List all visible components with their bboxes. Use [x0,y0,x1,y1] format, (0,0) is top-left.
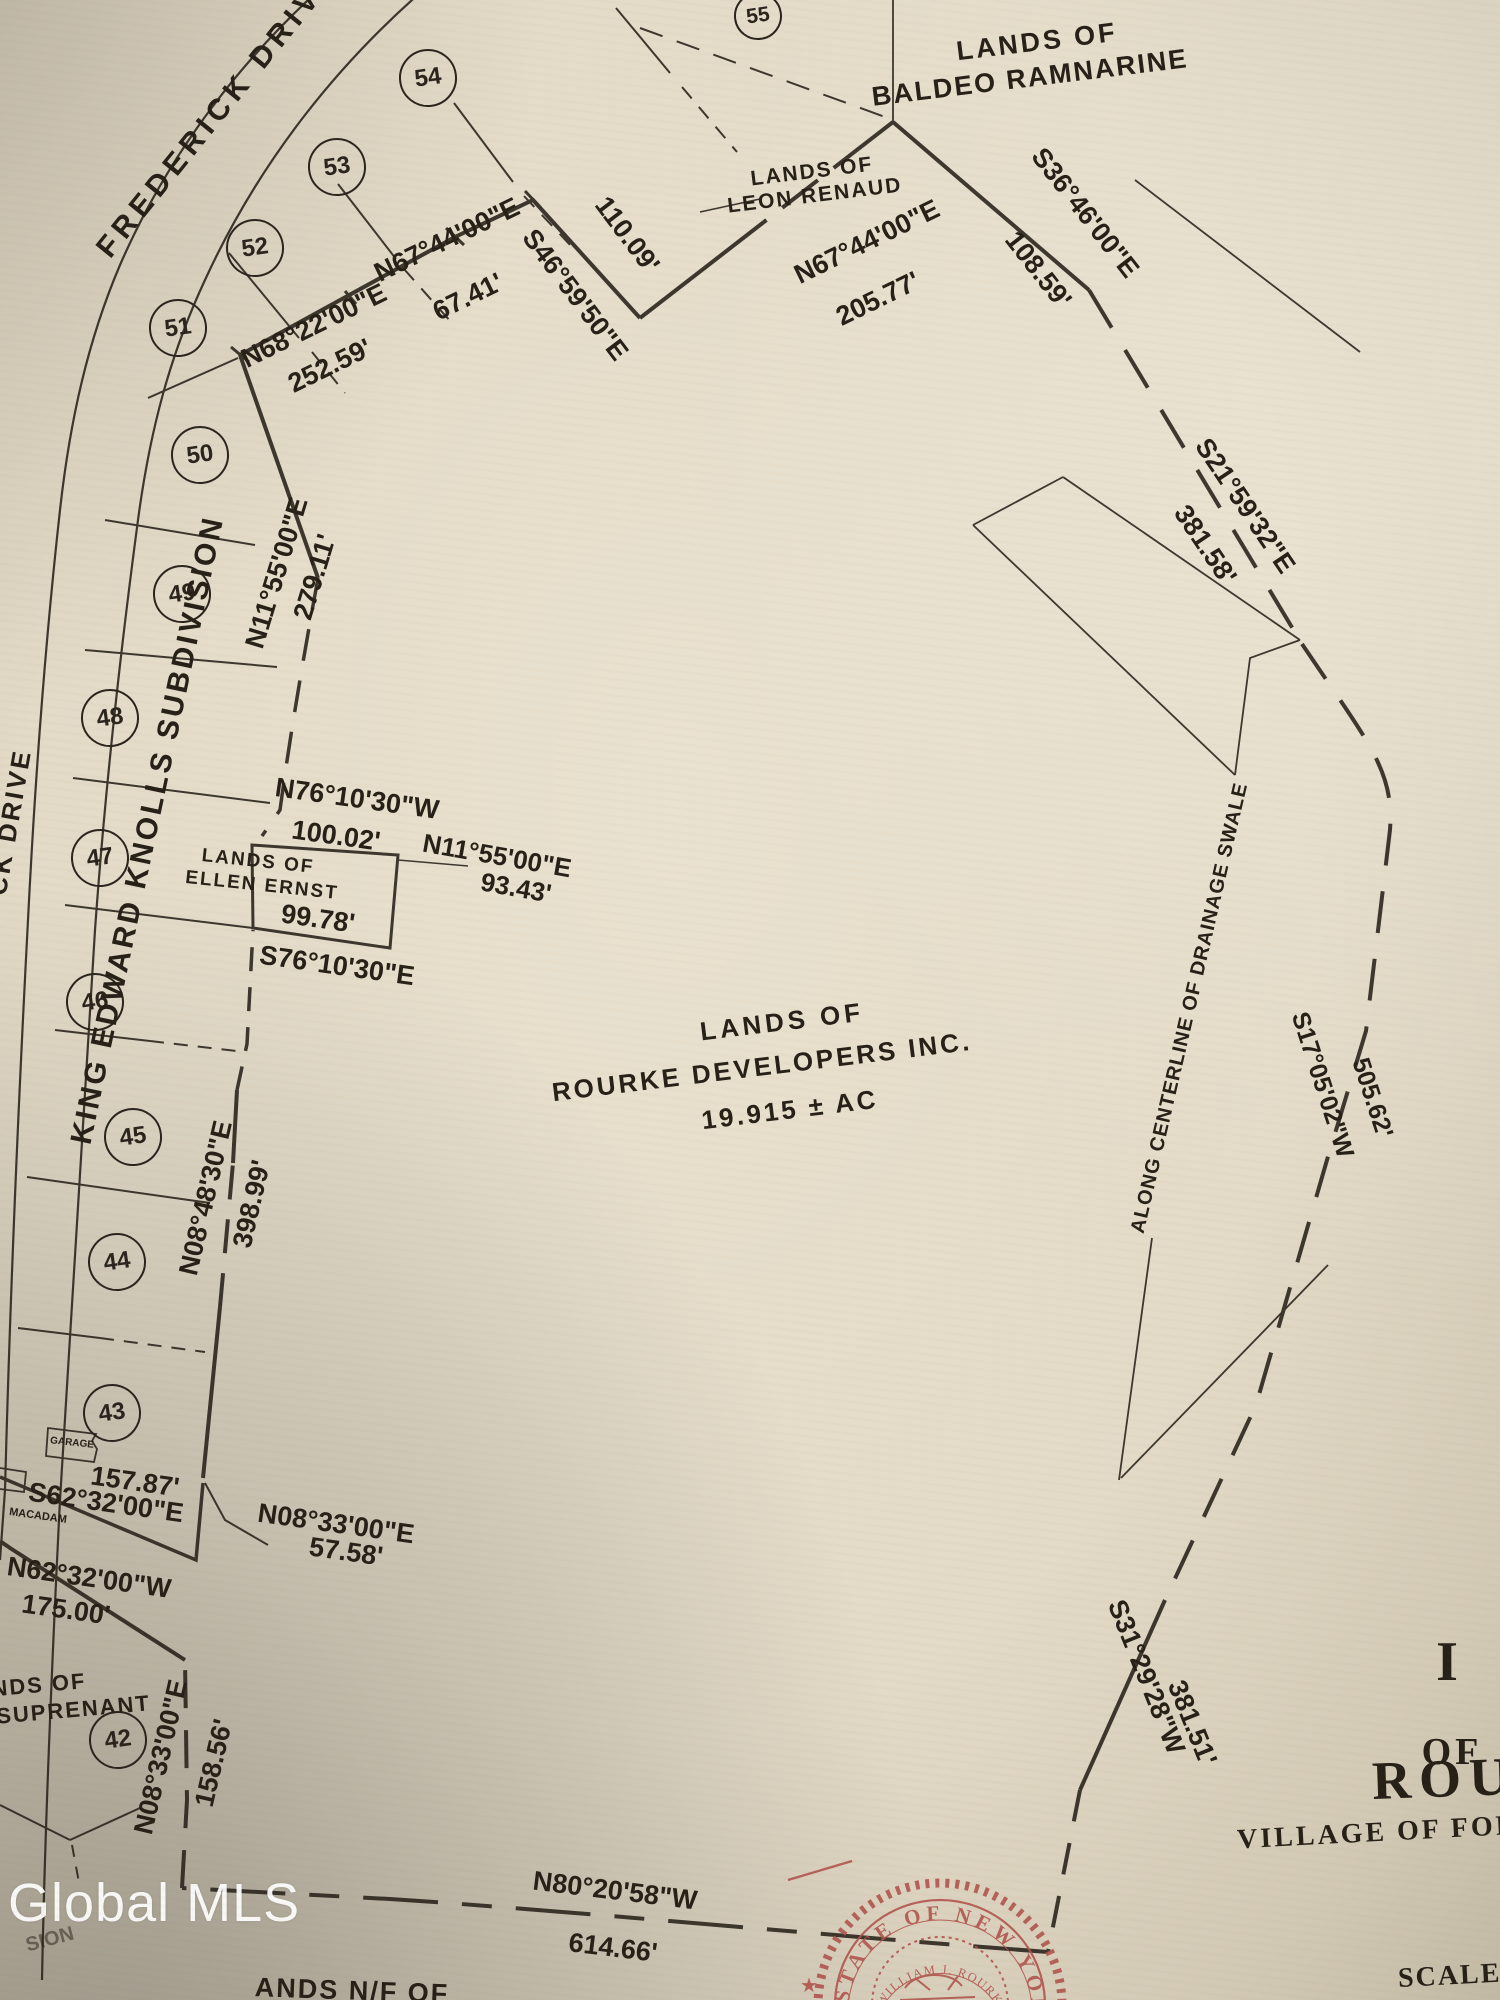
title-scale: SCALE: [1397,1957,1500,1995]
bearing-label: N08°48'30"E [173,1118,239,1279]
distance-label: 614.66' [567,1927,659,1969]
distance-label: 505.62' [1345,1054,1398,1141]
distance-label: 398.99' [227,1157,277,1251]
stamp-eagle-mark [900,1975,975,2000]
lot-number: 53 [322,151,352,182]
distance-label: 99.78' [279,899,357,940]
lot-separator-line [682,87,737,152]
title-fragment-bar: I [1436,1630,1458,1694]
road-name-frederick-drive: FREDERICK DRIVE [90,0,346,265]
title-village: VILLAGE OF FOR [1236,1810,1500,1857]
lot-circle-43: 43 [79,1380,145,1446]
lot-separator-line [148,358,238,398]
lot-circle-44: 44 [84,1229,150,1295]
boundary-line [640,122,893,318]
lot-number: 52 [240,232,270,263]
lot-circle-50: 50 [167,422,233,488]
stamp-stray-mark [788,1861,852,1880]
bearing-label: S17°05'02"W [1285,1008,1359,1161]
lot-circle-53: 53 [304,134,370,200]
lot-number: 55 [745,2,771,29]
distance-label: 158.56' [189,1716,239,1810]
lot-separator-line [0,1805,140,1840]
lot-circle-54: 54 [395,45,461,111]
lot-number: 48 [95,702,125,733]
lot-separator-line [640,28,888,118]
parcel-owner-line1: LANDS OF [698,997,865,1048]
lot-circle-55: 55 [731,0,785,43]
lot-separator-line [100,1338,205,1352]
distance-label: 108.59' [998,225,1077,314]
garage-label: GARAGE [50,1435,95,1451]
distance-label: 110.09' [588,191,665,280]
stamp-inner-ring [872,1937,1008,2000]
lot-number: 45 [118,1121,148,1152]
shed-outline [0,1468,26,1492]
boundary-line-dashed [1089,290,1302,644]
adjoiner-bottom-partial: ANDS N/F OF [254,1972,449,2000]
lot-separator-line [454,103,513,182]
lot-number: 51 [163,312,193,343]
title-name-rourke: ROURKE [1371,1740,1500,1812]
boundary-line-dashed [1165,644,1390,1600]
lot-number: 47 [85,842,115,873]
bearing-label: N80°20'58"W [531,1866,699,1917]
stamp-outer-ring [835,1900,1045,2000]
distance-label: 100.02' [290,814,382,857]
lot-separator-line [105,520,255,545]
lot-separator-line [27,1177,210,1203]
boundary-line [203,1307,220,1478]
bearing-label: S76°10'30"E [258,940,417,992]
lot-separator-line [616,8,670,73]
lot-circle-48: 48 [77,685,143,751]
lot-number: 42 [103,1724,133,1755]
bearing-label: N67°44'00"E [369,192,524,289]
lot-circle-45: 45 [100,1104,166,1170]
lot-number: 54 [413,62,443,93]
lot-separator-line [150,1041,245,1052]
lot-number: 44 [102,1246,132,1277]
lot-circle-52: 52 [222,215,288,281]
boundary-line-dashed [237,930,253,1090]
lot-separator-line [65,905,253,928]
stamp-star-icon: ★ [800,1975,818,1997]
lot-circle-51: 51 [145,295,211,361]
lot-number: 43 [97,1397,127,1428]
distance-label: 67.41' [428,267,508,327]
bearing-label: S31°29'28"W [1101,1595,1191,1758]
lot-separator-line [338,184,396,259]
lot-number: 50 [185,439,215,470]
swale-note: ALONG CENTERLINE OF DRAINAGE SWALE [1127,780,1253,1235]
swale-line [1119,1238,1328,1480]
survey-plat-photo: STATE OF NEW YORK WILLIAM J. ROURKE ★ 42… [0,0,1500,2000]
parcel-area: 19.915 ± AC [700,1084,880,1136]
stamp-surveyor-name: WILLIAM J. ROURKE [874,1962,1011,2000]
mls-watermark: Global MLS [8,1872,300,1934]
boundary-line-dashed [1048,1790,1080,1952]
lot-separator-line [18,1328,100,1338]
road-name-partial: CK DRIVE [0,746,38,897]
stamp-rope-ring [818,1883,1062,2000]
distance-label: 205.77' [831,266,925,333]
survey-linework: STATE OF NEW YORK WILLIAM J. ROURKE ★ [0,0,1500,2000]
